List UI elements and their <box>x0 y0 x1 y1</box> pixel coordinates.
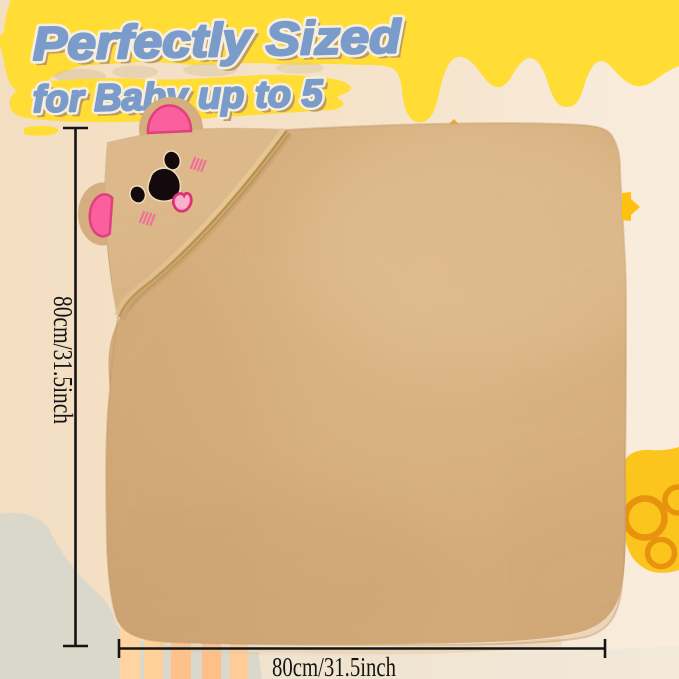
svg-text:80cm/31.5inch: 80cm/31.5inch <box>272 652 396 679</box>
svg-text:80cm/31.5inch: 80cm/31.5inch <box>48 296 78 424</box>
svg-text:Perfectly Sized: Perfectly Sized <box>32 9 402 70</box>
